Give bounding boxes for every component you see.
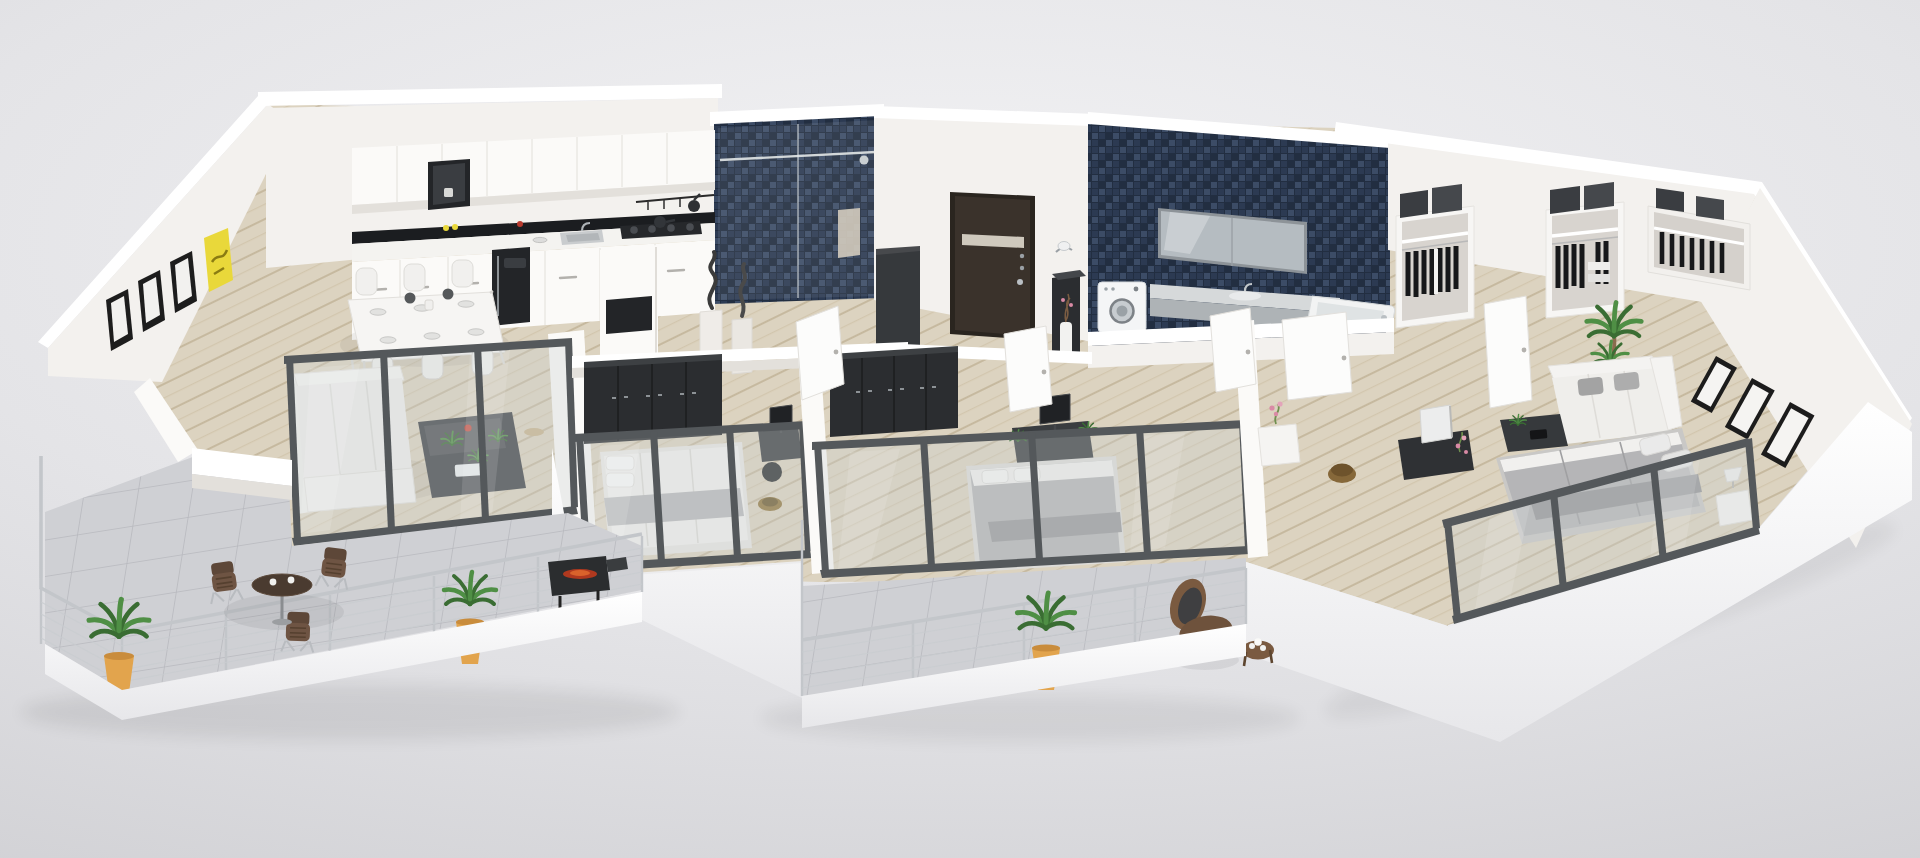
floorplan-svg	[0, 0, 1920, 858]
floorplan-render	[0, 0, 1920, 858]
shower-room	[710, 104, 884, 304]
tv-panel	[606, 296, 652, 334]
storage-box	[1656, 188, 1684, 212]
door-handle-icon	[1017, 279, 1023, 285]
gray-cushion	[1577, 377, 1604, 397]
open-door	[1282, 312, 1352, 400]
closet-unit-2	[1546, 182, 1624, 318]
storage-box	[1584, 182, 1614, 210]
tv-panel-white	[1420, 405, 1452, 443]
entry-door	[955, 196, 1030, 336]
storage-box	[1432, 184, 1462, 214]
centerpiece	[443, 289, 454, 300]
open-door	[1004, 326, 1052, 412]
basin	[1229, 292, 1261, 301]
open-door	[1210, 308, 1256, 392]
tall-appliance-column	[492, 247, 530, 326]
storage-box	[1400, 190, 1428, 218]
centerpiece	[405, 293, 416, 304]
open-door	[1484, 296, 1532, 408]
bedroom2-glass-wall	[812, 420, 1252, 578]
gray-cushion	[1613, 372, 1640, 392]
storage-box	[1550, 186, 1580, 214]
open-shelf-black	[428, 159, 470, 210]
open-door	[796, 306, 844, 400]
return-counter	[600, 245, 658, 362]
storage-box	[1696, 196, 1724, 220]
lounge-sofa	[1548, 356, 1682, 444]
bedroom2-wardrobe	[830, 346, 958, 437]
living-glass-wall	[284, 338, 578, 546]
washing-machine	[1098, 282, 1146, 332]
bistro-table	[252, 574, 312, 596]
